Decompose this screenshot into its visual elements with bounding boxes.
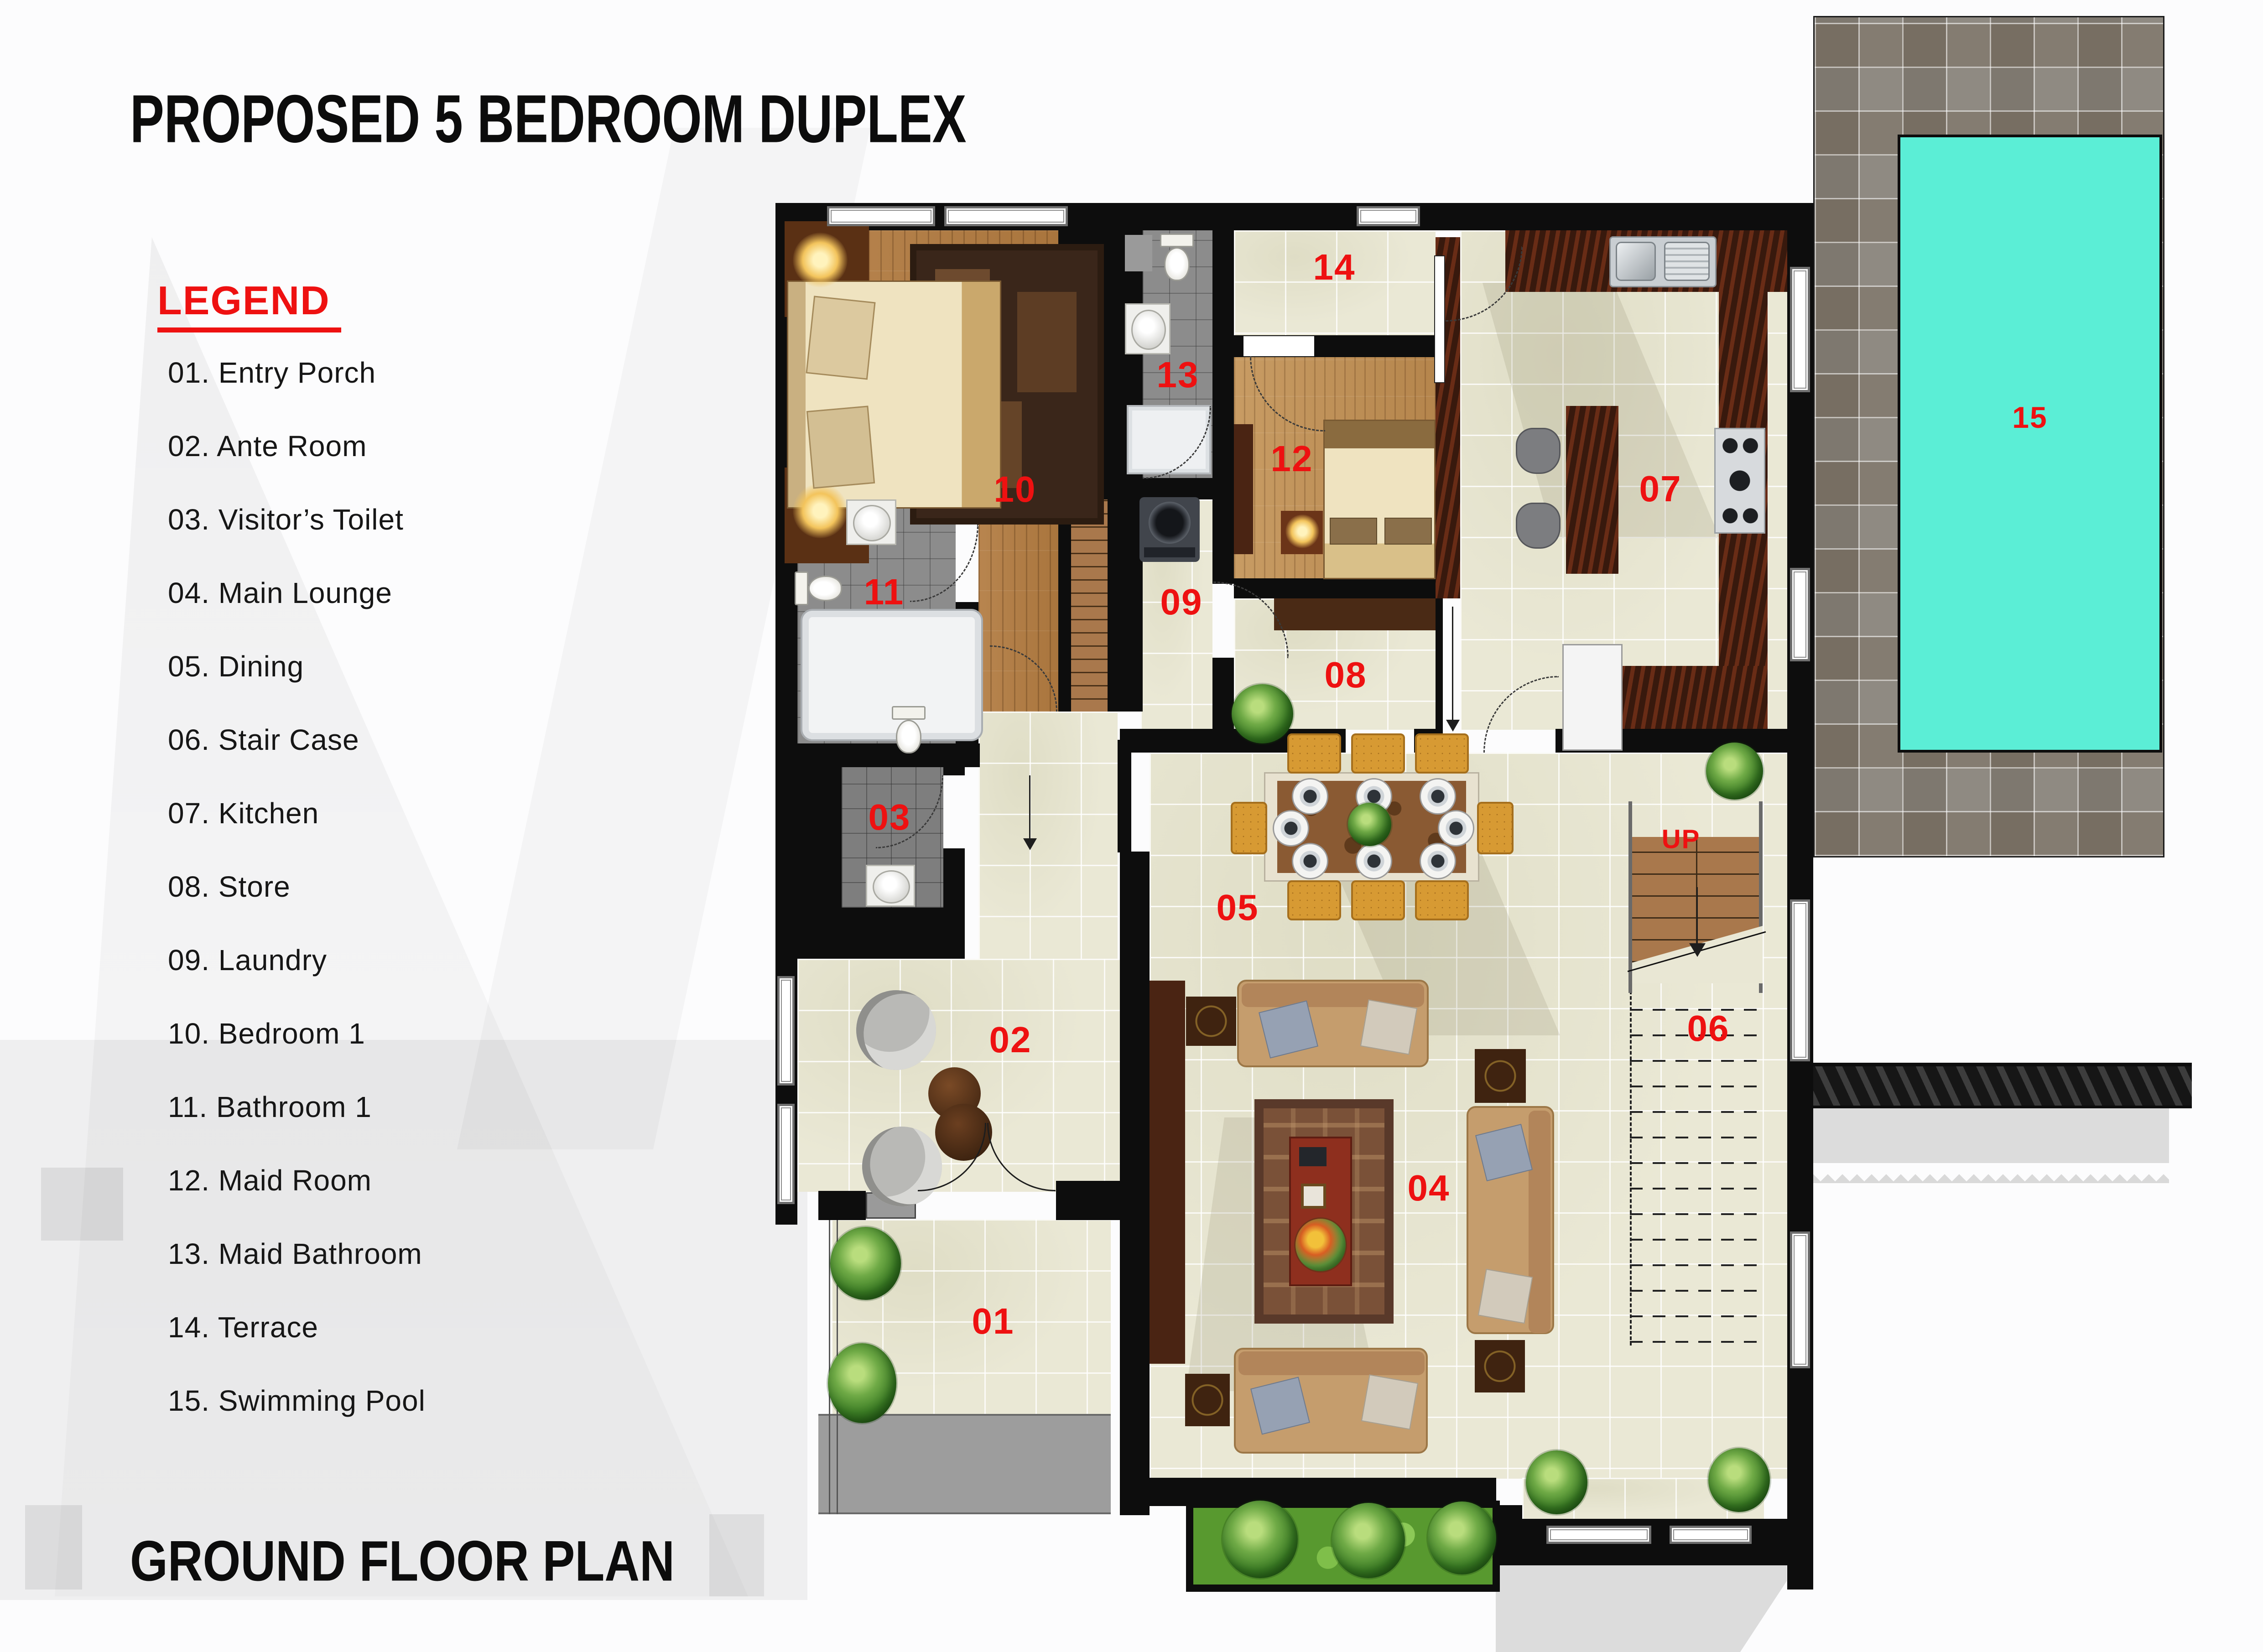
plant-dining-right bbox=[1706, 743, 1763, 800]
label-maid-bathroom: 13 bbox=[1157, 354, 1199, 396]
door-arc-bathroom-1 bbox=[910, 525, 978, 602]
dining-chair bbox=[1351, 733, 1405, 774]
wall-toilet-bottom-block bbox=[797, 908, 965, 959]
window-stairs-right bbox=[1790, 899, 1810, 1061]
legend-item: 02. Ante Room bbox=[168, 429, 426, 463]
pillow bbox=[806, 296, 875, 379]
shower-shelf bbox=[1125, 235, 1152, 271]
wall-bath1-toilet bbox=[775, 743, 980, 767]
window-lounge-right bbox=[1790, 1231, 1810, 1368]
kitchen-island bbox=[1566, 406, 1618, 574]
stair-closet-treads bbox=[1071, 499, 1108, 712]
wall-laundry-right-top bbox=[1212, 499, 1234, 584]
window-kitchen-right-1 bbox=[1790, 267, 1810, 392]
plate bbox=[1356, 843, 1392, 879]
label-laundry: 09 bbox=[1160, 581, 1203, 623]
dining-chair bbox=[1351, 880, 1405, 920]
legend-item: 12. Maid Room bbox=[168, 1164, 426, 1197]
dining-chair bbox=[1231, 802, 1267, 854]
label-bedroom-1: 10 bbox=[994, 468, 1036, 510]
lamp bbox=[793, 233, 848, 287]
lamp bbox=[1285, 514, 1319, 548]
cushion bbox=[1360, 999, 1417, 1055]
dining-chair bbox=[1287, 880, 1341, 920]
wall-closet-right bbox=[1108, 499, 1143, 712]
kitchen-sink-bowl bbox=[1616, 242, 1656, 281]
bedroom-rug-motif bbox=[1017, 292, 1077, 392]
label-stairs-up: UP bbox=[1662, 824, 1701, 855]
toilet-visitors bbox=[892, 706, 926, 756]
bar-stool bbox=[1516, 428, 1561, 474]
kitchen-counter-return bbox=[1621, 666, 1768, 729]
label-terrace: 14 bbox=[1313, 246, 1356, 288]
label-swimming-pool: 15 bbox=[2012, 400, 2047, 435]
store-credenza bbox=[1274, 598, 1436, 630]
wall-right bbox=[1787, 203, 1813, 1590]
legend-item: 11. Bathroom 1 bbox=[168, 1090, 426, 1124]
side-table bbox=[1475, 1340, 1525, 1392]
label-main-lounge: 04 bbox=[1408, 1167, 1450, 1209]
window-bay-2 bbox=[1670, 1526, 1752, 1544]
doorway-maid-room bbox=[1243, 336, 1314, 356]
dining-chair bbox=[1415, 880, 1469, 920]
label-visitors-toilet: 03 bbox=[869, 796, 911, 838]
side-table bbox=[1475, 1049, 1526, 1103]
kitchen-sink-drainer bbox=[1664, 242, 1710, 281]
side-table bbox=[1186, 997, 1236, 1046]
kitchen-passage-arrow-head bbox=[1446, 720, 1460, 732]
watermark-window-2 bbox=[25, 1505, 82, 1590]
legend-item: 09. Laundry bbox=[168, 943, 426, 977]
wall-store-top bbox=[1234, 578, 1436, 598]
plate bbox=[1438, 810, 1474, 847]
planter-plant bbox=[1428, 1501, 1496, 1574]
label-kitchen: 07 bbox=[1639, 468, 1682, 510]
wall-ante-lounge bbox=[1120, 852, 1150, 1515]
wall-toilet-right-top bbox=[943, 767, 965, 775]
legend-item: 10. Bedroom 1 bbox=[168, 1017, 426, 1050]
pillow bbox=[806, 405, 875, 488]
lamp bbox=[793, 483, 848, 538]
sink-bathroom-1 bbox=[846, 499, 896, 545]
plate bbox=[1420, 843, 1456, 879]
label-bathroom-1: 11 bbox=[864, 571, 905, 613]
sink-visitors-toilet bbox=[866, 865, 915, 907]
label-dining: 05 bbox=[1217, 887, 1259, 929]
label-stair-case: 06 bbox=[1687, 1008, 1730, 1049]
walkway-shadow bbox=[1813, 1108, 2169, 1163]
legend-item: 07. Kitchen bbox=[168, 796, 426, 830]
toilet-bathroom-1 bbox=[795, 571, 845, 605]
plant-dining-left bbox=[1232, 684, 1293, 743]
plate bbox=[1420, 778, 1456, 815]
side-table bbox=[1185, 1374, 1230, 1426]
legend-item: 05. Dining bbox=[168, 649, 426, 683]
picture-frame bbox=[1301, 1184, 1326, 1209]
stair-railing-left bbox=[1628, 801, 1632, 993]
bay-apron bbox=[1496, 1565, 1787, 1652]
walkway-hatched bbox=[1813, 1063, 2192, 1108]
dining-centerpiece-plant bbox=[1348, 803, 1391, 846]
legend-item: 13. Maid Bathroom bbox=[168, 1237, 426, 1271]
window-kitchen-right-2 bbox=[1790, 568, 1810, 661]
label-maid-room: 12 bbox=[1271, 438, 1313, 480]
page-footer-title: GROUND FLOOR PLAN bbox=[130, 1528, 675, 1594]
legend-heading: LEGEND bbox=[157, 277, 341, 332]
walkway-shadow-sawtooth bbox=[1813, 1163, 2169, 1183]
corridor-arrow bbox=[1029, 775, 1030, 839]
sofa-back bbox=[1529, 1111, 1550, 1333]
label-ante-room: 02 bbox=[989, 1019, 1032, 1061]
window-ante-left-2 bbox=[777, 1104, 795, 1204]
watermark-window-3 bbox=[709, 1514, 764, 1596]
legend-item: 06. Stair Case bbox=[168, 723, 426, 757]
washing-machine-panel bbox=[1144, 547, 1195, 557]
bar-stool bbox=[1516, 503, 1561, 549]
cushion bbox=[1361, 1374, 1418, 1429]
sofa-back bbox=[1242, 983, 1424, 1007]
wall-front-left bbox=[818, 1191, 866, 1220]
window-ante-left-1 bbox=[777, 976, 795, 1086]
wall-corridor-dining bbox=[1118, 740, 1131, 852]
legend-item: 14. Terrace bbox=[168, 1310, 426, 1344]
legend-item: 15. Swimming Pool bbox=[168, 1384, 426, 1418]
porch-steps bbox=[818, 1414, 1111, 1514]
flower-bouquet bbox=[1295, 1219, 1346, 1271]
porch-plant bbox=[828, 1343, 896, 1423]
legend-item: 01. Entry Porch bbox=[168, 356, 426, 390]
wall-front-right bbox=[1056, 1181, 1120, 1220]
kitchen-passage-arrow bbox=[1452, 607, 1453, 721]
wall-toilet-left bbox=[797, 767, 842, 908]
porch-plant bbox=[830, 1227, 901, 1300]
dining-chair bbox=[1415, 733, 1469, 774]
window-bedroom-top-2 bbox=[944, 206, 1068, 226]
floor-corridor bbox=[978, 712, 1118, 960]
wall-store-right-jamb bbox=[1436, 598, 1443, 731]
window-bedroom-top-1 bbox=[827, 206, 935, 226]
plate bbox=[1273, 810, 1309, 847]
toilet-maid-bathroom bbox=[1160, 234, 1194, 284]
planter-plant bbox=[1332, 1503, 1405, 1578]
pillow bbox=[1384, 518, 1432, 545]
window-bay-1 bbox=[1546, 1526, 1651, 1544]
label-store: 08 bbox=[1325, 654, 1367, 696]
plate bbox=[1292, 843, 1328, 879]
legend-item: 04. Main Lounge bbox=[168, 576, 426, 610]
corridor-arrow-head bbox=[1023, 838, 1037, 850]
tv-console bbox=[1150, 981, 1185, 1364]
label-entry-porch: 01 bbox=[972, 1300, 1014, 1342]
gas-hob bbox=[1714, 428, 1765, 534]
wall-maidbath-right bbox=[1212, 230, 1234, 499]
pillow bbox=[1330, 518, 1377, 545]
stair-arrow bbox=[1696, 887, 1698, 944]
dining-chair bbox=[1287, 733, 1341, 774]
maid-wardrobe bbox=[1234, 424, 1253, 554]
watermark-window-1 bbox=[41, 1168, 123, 1241]
pool-water bbox=[1898, 135, 2162, 753]
legend-list: 01. Entry Porch 02. Ante Room 03. Visito… bbox=[168, 356, 426, 1457]
sink-maid-bathroom bbox=[1125, 303, 1171, 354]
bed-maid bbox=[1323, 420, 1436, 579]
wall-maidbath-laundry bbox=[1120, 478, 1234, 499]
dining-chair bbox=[1477, 802, 1514, 854]
cushion bbox=[1478, 1269, 1533, 1324]
plate bbox=[1292, 778, 1328, 815]
door-leaf-terrace-kitchen bbox=[1434, 255, 1445, 383]
remote-control bbox=[1299, 1147, 1327, 1166]
stair-arrow-head bbox=[1689, 943, 1706, 957]
sofa-back bbox=[1238, 1351, 1425, 1375]
bay-plant-left bbox=[1526, 1450, 1587, 1514]
window-terrace-top bbox=[1357, 206, 1420, 226]
legend-item: 03. Visitor’s Toilet bbox=[168, 503, 426, 536]
wall-toilet-right-bottom bbox=[943, 848, 965, 908]
page-title: PROPOSED 5 BEDROOM DUPLEX bbox=[130, 80, 967, 158]
washing-machine-door bbox=[1149, 502, 1191, 544]
legend-item: 08. Store bbox=[168, 870, 426, 904]
bay-plant-right bbox=[1708, 1448, 1770, 1512]
planter-plant bbox=[1223, 1501, 1298, 1578]
fridge bbox=[1562, 644, 1623, 751]
